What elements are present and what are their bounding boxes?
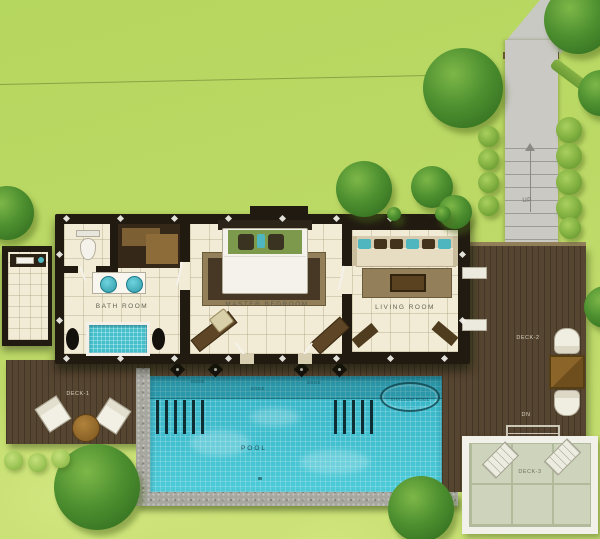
dining-chair bbox=[554, 328, 580, 354]
pool-column-dot bbox=[338, 368, 341, 371]
deck2-label: DECK-2 bbox=[508, 336, 548, 342]
planter bbox=[66, 328, 79, 350]
toilet-nook-wall bbox=[110, 224, 118, 272]
vanity-sink bbox=[126, 276, 143, 293]
bush bbox=[478, 172, 499, 193]
duvet-crease bbox=[224, 256, 306, 257]
sofa-cushion bbox=[406, 239, 419, 249]
pool-edge-label: EDGE bbox=[306, 381, 323, 385]
pool-edge-label: EDGE bbox=[190, 380, 207, 384]
sofa-cushion bbox=[438, 239, 451, 249]
sofa-arm bbox=[453, 236, 458, 266]
sofa-seat bbox=[356, 249, 456, 267]
bathtub bbox=[86, 322, 150, 356]
bush bbox=[556, 117, 582, 143]
closet-shelf bbox=[146, 234, 178, 264]
pool-label: POOL bbox=[234, 446, 274, 453]
bed-pillow bbox=[238, 234, 254, 250]
door-threshold bbox=[240, 354, 254, 364]
up-label: UP bbox=[515, 198, 539, 204]
shallow-label: SHALLOW POOL bbox=[386, 398, 434, 402]
deck-down-step-line bbox=[508, 433, 558, 434]
shrub bbox=[435, 206, 451, 222]
bush bbox=[4, 451, 23, 470]
deck3-label: DECK-3 bbox=[510, 470, 550, 476]
sofa-cushion bbox=[390, 239, 403, 249]
pool-column-dot bbox=[214, 368, 217, 371]
bush bbox=[559, 217, 581, 239]
bed-pillow-teal bbox=[257, 234, 265, 248]
bush bbox=[51, 449, 70, 468]
sofa-cushion bbox=[358, 239, 371, 249]
walkway-up-arrow-icon bbox=[525, 143, 535, 151]
bush bbox=[478, 149, 499, 170]
bush bbox=[556, 143, 582, 169]
floor-plan-canvas: UP DECK-1 DECK-2 DN SHALLOW POOL EDGE ED… bbox=[0, 0, 600, 539]
deck-round-table bbox=[72, 414, 100, 442]
annex-tray bbox=[16, 257, 34, 264]
sofa-cushion bbox=[422, 239, 435, 249]
deck1-label: DECK-1 bbox=[58, 392, 98, 398]
master-bedroom-label: MASTER BEDROOM bbox=[192, 302, 342, 309]
dining-table bbox=[549, 355, 585, 389]
pool-column-dot bbox=[176, 368, 179, 371]
planter bbox=[152, 328, 165, 350]
sofa-arm bbox=[352, 236, 357, 266]
bush bbox=[478, 195, 499, 216]
pool-light bbox=[250, 408, 300, 426]
east-step bbox=[462, 267, 487, 279]
coffee-table bbox=[390, 274, 426, 292]
bush bbox=[556, 169, 582, 195]
dn-label: DN bbox=[516, 413, 536, 419]
dining-chair bbox=[554, 390, 580, 416]
pool-light bbox=[300, 450, 370, 474]
lane-marker-right bbox=[334, 400, 376, 434]
door-threshold bbox=[298, 354, 312, 364]
tree bbox=[388, 476, 454, 539]
tree bbox=[423, 48, 503, 128]
pool-column-dot bbox=[300, 368, 303, 371]
annex-basin bbox=[38, 257, 44, 263]
bush bbox=[28, 453, 47, 472]
bush bbox=[478, 126, 499, 147]
pool-depth-mark bbox=[258, 477, 262, 480]
living-room-label: LIVING ROOM bbox=[352, 305, 458, 312]
east-step bbox=[462, 319, 487, 331]
bed-pillow bbox=[268, 234, 284, 250]
sofa-cushion bbox=[374, 239, 387, 249]
tree bbox=[336, 161, 392, 217]
toilet-tank bbox=[76, 230, 100, 237]
toilet-nook-wall bbox=[64, 266, 78, 273]
vanity-sink bbox=[100, 276, 117, 293]
bed-head-wall bbox=[250, 206, 308, 218]
pool-edge-label: EDGE bbox=[250, 387, 267, 391]
lane-marker-left bbox=[156, 400, 204, 434]
shrub bbox=[387, 207, 401, 221]
bathroom-label: BATH ROOM bbox=[64, 304, 180, 311]
